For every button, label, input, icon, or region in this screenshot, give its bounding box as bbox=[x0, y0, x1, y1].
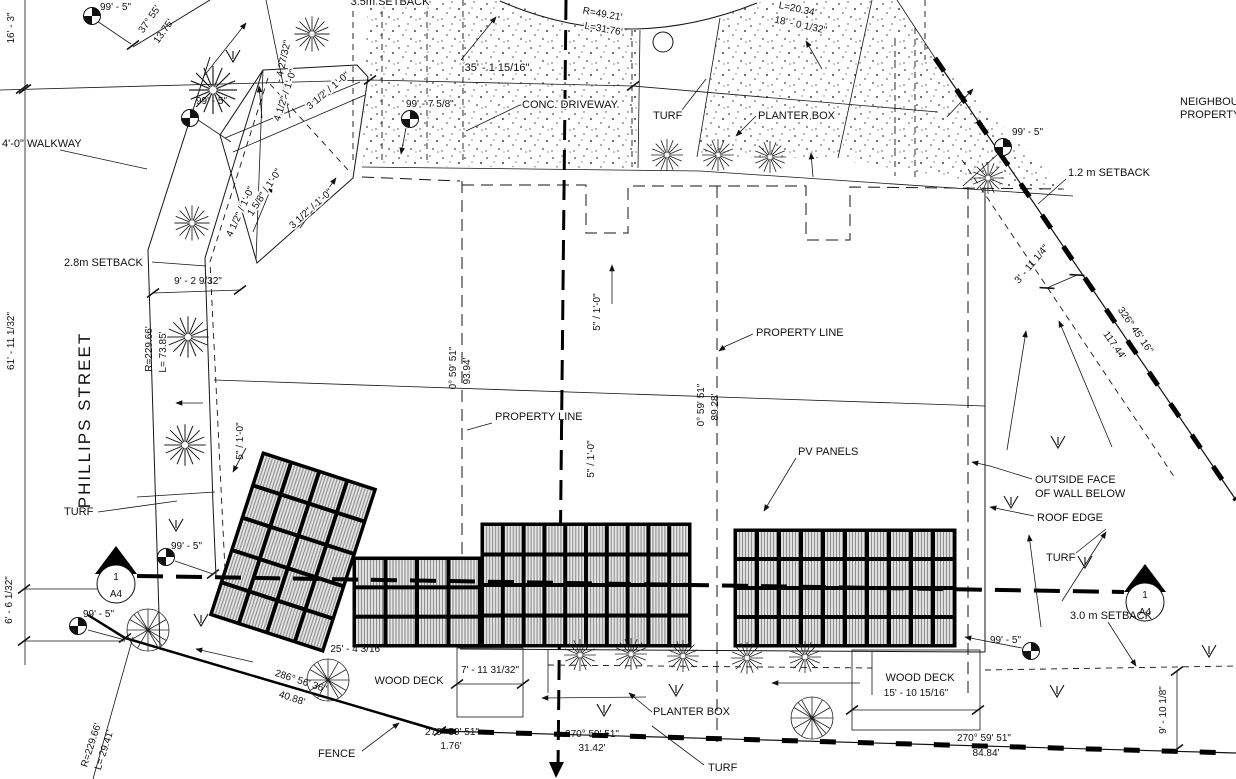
dim-9-2: 9' - 2 9/32" bbox=[174, 276, 222, 287]
bearing-270-len2: 31.42' bbox=[579, 743, 606, 754]
bearing-270-len3: 84.84' bbox=[973, 748, 1000, 759]
bearing-0-59: 0° 59' 51" bbox=[448, 346, 459, 389]
dim-3-11: 3' - 11 1/4" bbox=[1013, 243, 1052, 286]
bearing-0-59-len: 93.94' bbox=[462, 357, 473, 384]
property-line-left: PROPERTY LINE bbox=[495, 411, 583, 423]
utility-cover-icon bbox=[653, 32, 673, 52]
dim-tick-icon bbox=[1040, 281, 1055, 296]
section-marker-number: 1 bbox=[113, 572, 119, 583]
dim-9-10: 9' - 10 1/8" bbox=[1158, 686, 1169, 734]
spot-99-5: 99' - 5" bbox=[196, 96, 227, 107]
spot-99-5: 99' - 5" bbox=[990, 635, 1021, 646]
slope-5: 5" / 1'-0" bbox=[592, 293, 603, 331]
flow-arrow-icon bbox=[1004, 496, 1018, 508]
curve-r229: R=229.66' bbox=[144, 326, 155, 372]
shrub-icon bbox=[167, 316, 209, 358]
slope-35: 3 1/2" / 1'-0" bbox=[288, 187, 336, 232]
turf-left: TURF bbox=[64, 506, 94, 518]
wood-deck-left bbox=[451, 648, 529, 717]
benchmark-icon bbox=[995, 139, 1012, 156]
property-line-right: PROPERTY LINE bbox=[756, 327, 844, 339]
pv-array-small bbox=[354, 558, 480, 646]
flow-arrow-icon bbox=[1202, 645, 1216, 657]
site-plan-drawing: 16' - 3" 61' - 11 1/32" 6' - 6 1/32" PHI… bbox=[0, 0, 1236, 779]
shrub-icon bbox=[615, 638, 647, 670]
dim-15-10: 15' - 10 15/16" bbox=[884, 688, 949, 699]
bearing-0-59: 0° 59' 51" bbox=[696, 383, 707, 426]
flow-arrow-icon bbox=[1051, 436, 1065, 448]
benchmark-icon bbox=[84, 8, 101, 25]
pv-panels-leader bbox=[764, 458, 796, 511]
shrub-icon bbox=[164, 424, 206, 466]
bearing-270: 270° 59' 51" bbox=[425, 727, 479, 738]
street-name: PHILLIPS STREET bbox=[75, 332, 94, 508]
flow-arrow-icon bbox=[169, 519, 183, 531]
shrub-icon bbox=[651, 139, 683, 171]
turf-top: TURF bbox=[653, 110, 683, 122]
bearing-0-59-len: 89.28' bbox=[710, 393, 721, 420]
bearing-270: 270° 59' 51" bbox=[565, 729, 619, 740]
wood-deck-right-label: WOOD DECK bbox=[885, 672, 955, 684]
curve-l73: L= 73.85' bbox=[158, 331, 169, 372]
dim-7-11: 7' - 11 31/32" bbox=[461, 665, 520, 676]
flow-arrow-icon bbox=[1050, 685, 1064, 697]
dim-25-4: 25' - 4 3/16" bbox=[330, 644, 384, 655]
shrub-icon bbox=[667, 640, 699, 672]
dim-6-6: 6' - 6 1/32" bbox=[4, 576, 15, 624]
walkway-label: 4'-0" WALKWAY bbox=[2, 138, 82, 150]
conc-driveway-label: CONC. DRIVEWAY bbox=[522, 99, 619, 111]
section-marker-sheet: A4 bbox=[1139, 607, 1152, 618]
tree-icon bbox=[791, 697, 833, 739]
flow-arrow-icon bbox=[226, 50, 240, 62]
wood-deck-left-label: WOOD DECK bbox=[374, 675, 444, 687]
section-marker-number: 1 bbox=[1142, 590, 1148, 601]
slope-5: 5" / 1'-0" bbox=[235, 422, 246, 460]
bearing-270: 270° 59' 51" bbox=[957, 733, 1011, 744]
bearing-270-len1: 1.76' bbox=[440, 741, 461, 752]
turf-right: TURF bbox=[1046, 552, 1076, 564]
spot-99-5: 99' - 5" bbox=[1012, 127, 1043, 138]
benchmark-icon bbox=[402, 111, 419, 128]
roof-edge-label: ROOF EDGE bbox=[1037, 512, 1103, 524]
planter-box-bottom-label: PLANTER BOX bbox=[653, 706, 731, 718]
setback-28: 2.8m SETBACK bbox=[64, 257, 144, 269]
dim-35-1: 35' - 1 15/16" bbox=[465, 62, 530, 74]
shrub-icon bbox=[174, 205, 209, 240]
shrub-icon bbox=[294, 16, 329, 51]
slope-35ft: 3 1/2' / 1'-0" bbox=[305, 70, 353, 112]
outside-face-2: OF WALL BELOW bbox=[1035, 488, 1126, 500]
spot-99-7: 99' - 7 5/8" bbox=[406, 99, 454, 110]
bearing-286-len: 40.88' bbox=[277, 689, 306, 708]
spot-99-5: 99' - 5" bbox=[100, 2, 131, 13]
neighbour-line1: NEIGHBOUR bbox=[1180, 96, 1236, 108]
tree-icon bbox=[127, 609, 169, 651]
dim-61-11: 61' - 11 1/32" bbox=[6, 312, 17, 371]
setback-35m: 3.5m SETBACK bbox=[351, 0, 431, 8]
benchmark-icon bbox=[182, 110, 199, 127]
dim-16-3: 16' - 3" bbox=[6, 12, 17, 43]
shrub-icon bbox=[731, 642, 763, 674]
driveway-ramp bbox=[220, 65, 368, 263]
south-east-setback bbox=[985, 529, 1236, 754]
flow-arrow-icon bbox=[194, 614, 208, 626]
neighbour-line2: PROPERTY bbox=[1180, 109, 1236, 121]
flow-arrow-icon bbox=[669, 684, 683, 696]
spot-99-5: 99' - 5" bbox=[171, 541, 202, 552]
site-plan: 16' - 3" 61' - 11 1/32" 6' - 6 1/32" PHI… bbox=[0, 0, 1236, 779]
benchmark-icon bbox=[70, 618, 87, 635]
benchmark-icon bbox=[1023, 643, 1040, 660]
setback-12m: 1.2 m SETBACK bbox=[1068, 167, 1151, 179]
outside-face-1: OUTSIDE FACE bbox=[1035, 474, 1116, 486]
pv-array-tilted bbox=[211, 453, 376, 651]
section-marker-sheet: A4 bbox=[110, 589, 123, 600]
bearing-37-len: 13.75' bbox=[152, 17, 177, 45]
dim-tick-icon bbox=[1070, 268, 1085, 283]
spot-99-5: 99' - 5" bbox=[83, 609, 114, 620]
shrub-icon bbox=[789, 641, 821, 673]
flow-arrow-icon bbox=[597, 704, 611, 716]
shrub-icon bbox=[564, 639, 596, 671]
planter-box-top: PLANTER BOX bbox=[758, 110, 836, 122]
turf-bottom: TURF bbox=[708, 762, 738, 774]
slope-5: 5" / 1'-0" bbox=[586, 440, 597, 478]
fence-label: FENCE bbox=[318, 748, 355, 760]
pv-panels-label: PV PANELS bbox=[798, 446, 858, 458]
